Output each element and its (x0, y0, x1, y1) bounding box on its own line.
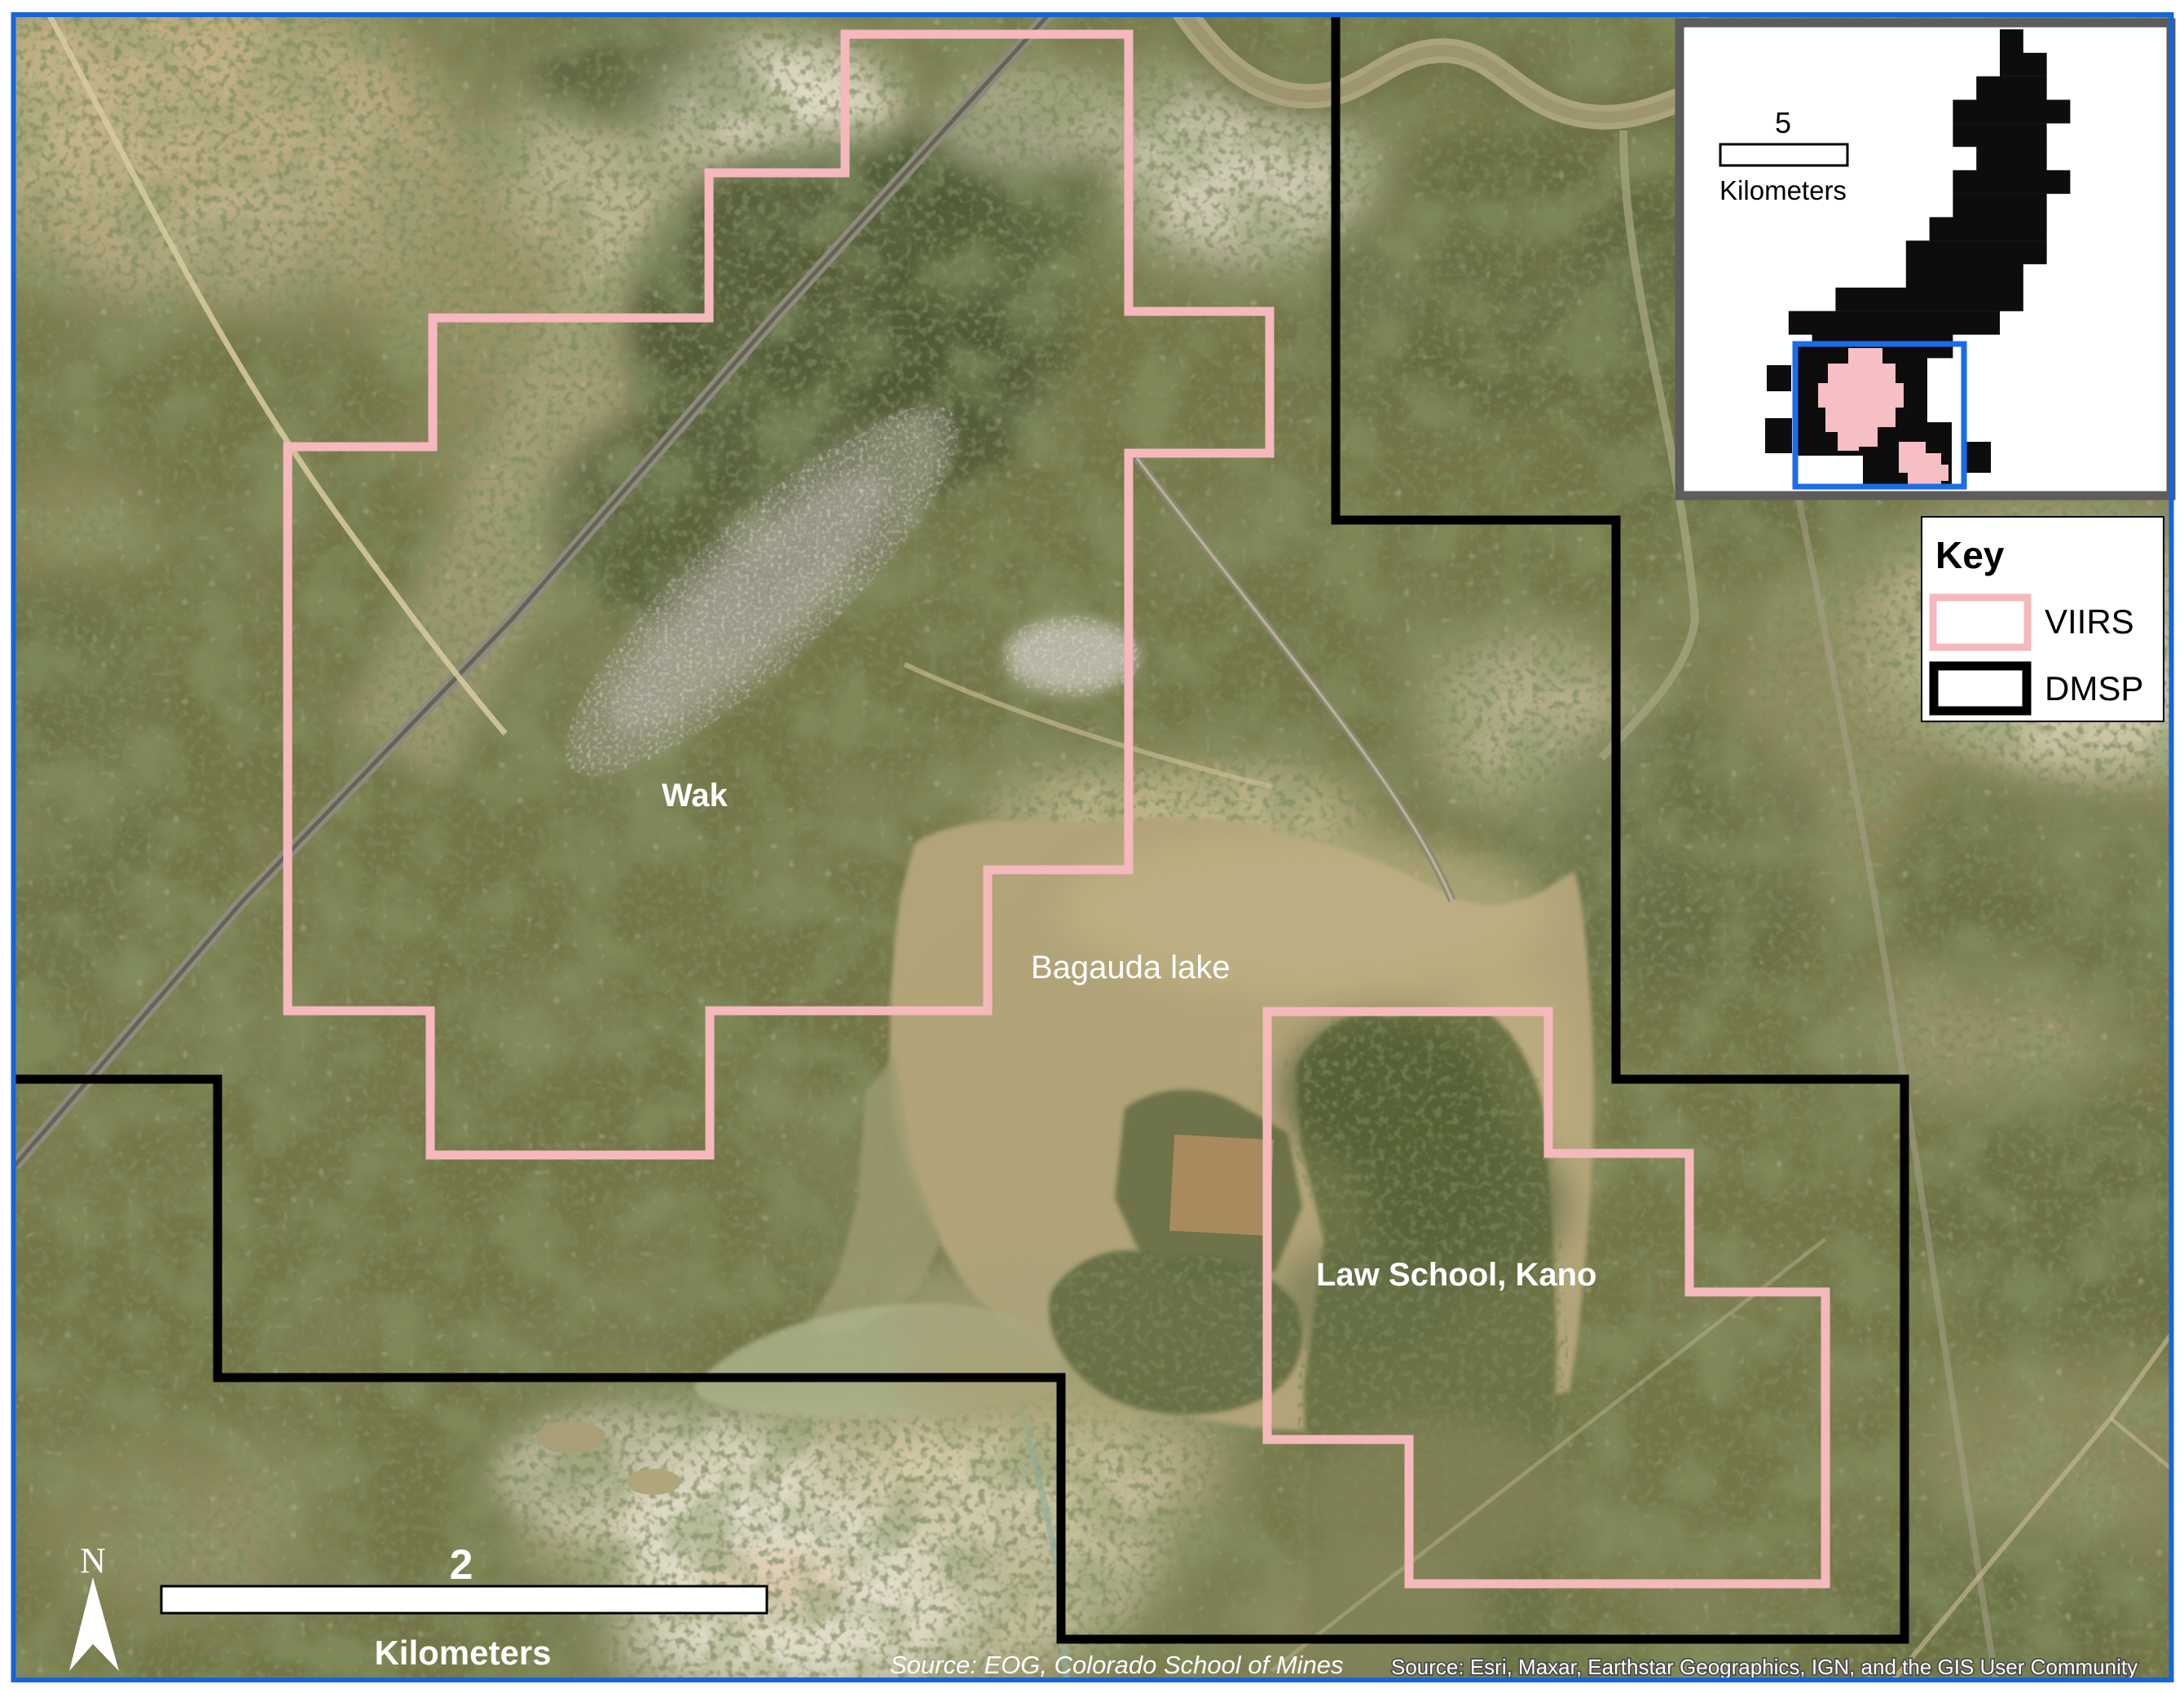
svg-text:2: 2 (450, 1541, 473, 1589)
svg-text:Source: Esri, Maxar, Earthstar: Source: Esri, Maxar, Earthstar Geographi… (1391, 1655, 2138, 1679)
svg-text:VIIRS: VIIRS (2045, 602, 2134, 641)
svg-text:Wak: Wak (662, 778, 729, 813)
svg-text:N: N (80, 1541, 106, 1581)
svg-text:Kilometers: Kilometers (1719, 175, 1847, 205)
svg-text:Source: EOG, Colorado School o: Source: EOG, Colorado School of Mines (890, 1651, 1344, 1679)
svg-text:Key: Key (1935, 534, 2005, 576)
svg-text:Kilometers: Kilometers (374, 1633, 551, 1672)
svg-text:Law School, Kano: Law School, Kano (1316, 1257, 1596, 1293)
svg-text:DMSP: DMSP (2045, 669, 2143, 708)
svg-text:5: 5 (1775, 106, 1791, 139)
svg-text:Bagauda lake: Bagauda lake (1031, 950, 1231, 985)
